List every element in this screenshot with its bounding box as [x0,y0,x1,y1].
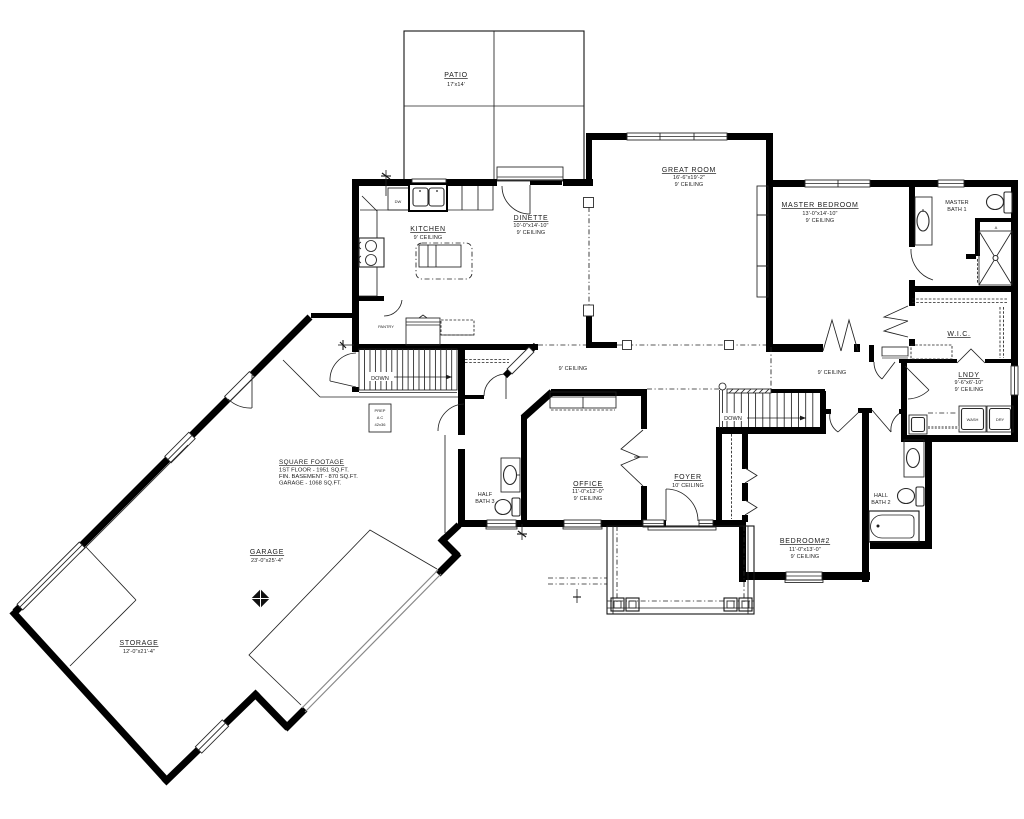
svg-text:GARAGE: GARAGE [250,549,284,556]
svg-text:12'-0"x21'-4": 12'-0"x21'-4" [123,649,155,655]
svg-text:MASTER: MASTER [945,200,969,206]
svg-text:MASTER BEDROOM: MASTER BEDROOM [781,202,858,209]
svg-text:1ST FLOOR - 1951 SQ.FT.: 1ST FLOOR - 1951 SQ.FT. [279,468,349,474]
svg-text:GARAGE - 1068 SQ.FT.: GARAGE - 1068 SQ.FT. [279,481,342,487]
svg-text:9' CEILING: 9' CEILING [818,370,847,376]
svg-text:DW: DW [395,199,402,204]
svg-text:9'-6"x6'-10": 9'-6"x6'-10" [955,380,984,386]
svg-text:DINETTE: DINETTE [514,215,549,222]
svg-text:23'-0"x25'-4": 23'-0"x25'-4" [251,558,283,564]
svg-text:FOYER: FOYER [674,474,702,481]
svg-text:SQUARE FOOTAGE: SQUARE FOOTAGE [279,459,344,466]
svg-text:LNDY: LNDY [958,372,979,379]
svg-text:16'-6"x19'-2": 16'-6"x19'-2" [673,175,705,181]
svg-text:HALL: HALL [874,493,888,499]
svg-text:9' CEILING: 9' CEILING [675,182,704,188]
svg-text:WASH: WASH [967,417,979,422]
svg-text:9' CEILING: 9' CEILING [806,218,835,224]
svg-text:DOWN: DOWN [371,376,389,382]
svg-text:9' CEILING: 9' CEILING [791,554,820,560]
svg-text:10' CEILING: 10' CEILING [672,483,704,489]
svg-text:A: A [995,225,998,230]
svg-text:11'-0"x13'-0": 11'-0"x13'-0" [789,547,821,553]
svg-text:DRY: DRY [996,417,1005,422]
svg-text:STORAGE: STORAGE [119,640,158,647]
svg-text:A C: A C [377,415,384,420]
svg-text:OFFICE: OFFICE [573,481,603,488]
svg-text:9' CEILING: 9' CEILING [574,496,603,502]
svg-text:GREAT ROOM: GREAT ROOM [662,167,716,174]
svg-text:FIN. BASEMENT - 870 SQ.FT.: FIN. BASEMENT - 870 SQ.FT. [279,474,358,480]
svg-text:DOWN: DOWN [724,416,742,422]
svg-text:10'-0"x14'-10": 10'-0"x14'-10" [513,223,548,229]
svg-text:PATIO: PATIO [444,72,467,79]
svg-text:KITCHEN: KITCHEN [410,226,446,233]
svg-text:PREP: PREP [375,408,386,413]
svg-text:9' CEILING: 9' CEILING [955,387,984,393]
svg-text:BATH 1: BATH 1 [947,207,966,213]
svg-text:BATH 3: BATH 3 [475,499,494,505]
svg-text:42x36: 42x36 [375,422,387,427]
svg-text:BATH 2: BATH 2 [871,500,890,506]
svg-text:W.I.C.: W.I.C. [947,331,970,338]
svg-text:9' CEILING: 9' CEILING [414,235,443,241]
svg-text:HALF: HALF [478,492,493,498]
svg-text:17'x14': 17'x14' [447,82,465,88]
svg-text:11'-0"x12'-0": 11'-0"x12'-0" [572,489,604,495]
svg-text:9' CEILING: 9' CEILING [517,230,546,236]
svg-text:13'-0"x14'-10": 13'-0"x14'-10" [802,211,837,217]
svg-text:9' CEILING: 9' CEILING [559,366,588,372]
svg-text:BEDROOM#2: BEDROOM#2 [780,538,830,545]
svg-text:PANTRY: PANTRY [378,324,394,329]
